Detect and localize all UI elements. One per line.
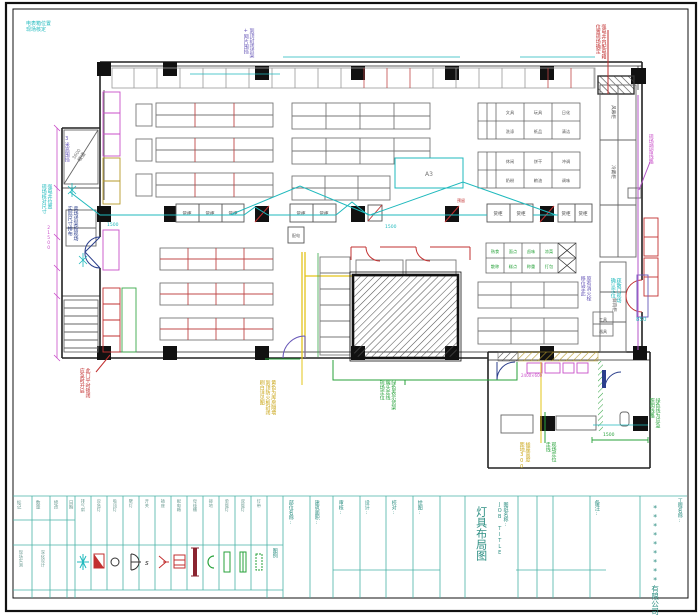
legend-double-lamp-icon	[240, 552, 246, 572]
svg-text:货柜: 货柜	[296, 210, 306, 217]
cyan-wiring	[68, 57, 595, 267]
dim-21500-left: 21500	[46, 226, 51, 251]
note-onsite-position: 现场定位 走线	[544, 442, 556, 462]
legend-label-lamp2: 双管灯	[240, 499, 245, 512]
svg-text:纸品: 纸品	[534, 128, 542, 135]
legend-wall-lamp-icon	[131, 554, 141, 570]
company-name: *********有限公司	[650, 504, 659, 615]
svg-text:日化: 日化	[562, 109, 571, 116]
gondola-shelves-right	[478, 282, 613, 344]
dim-fixtures: 2400×600	[521, 374, 542, 379]
checkout-labels: 货柜货柜 货柜货柜 货柜货柜 货柜货柜 货柜	[182, 210, 588, 217]
svg-text:休闲: 休闲	[506, 158, 514, 165]
note-fence: 3米高围挡	[63, 136, 69, 162]
left-entry-door	[85, 237, 100, 268]
grid-shelf-labels: 文具玩具日化 洗涤纸品清洁 休闲饼干冲调 奶粉粮油调味	[506, 109, 571, 184]
note-yellow-wall: 黄色为库房隔墙 到顶防火板封闭 刷白详见图	[258, 380, 275, 415]
drawing-sheet: A3 文具玩具日化 洗涤纸品清洁 休闲饼干冲调 奶粉粮油调味 熟食面点 卤味凉菜…	[0, 0, 700, 616]
svg-text:玩具: 玩具	[534, 110, 543, 116]
grid-shelf-blocks	[478, 103, 580, 188]
note-meter-box: 电表箱位置 现场核定	[26, 22, 51, 34]
legend-single-lamp-icon	[224, 552, 230, 572]
svg-text:打包: 打包	[545, 263, 554, 269]
revision-note-2: 深化设计	[40, 550, 45, 567]
svg-text:风幕柜: 风幕柜	[610, 105, 617, 119]
legend-busbar-icon	[191, 548, 199, 576]
legend-ground-icon	[208, 556, 214, 568]
legend-socket-icon	[159, 556, 169, 568]
svg-text:饼干: 饼干	[534, 158, 542, 165]
legend-distribution-box-icon	[174, 555, 185, 568]
legend-label-switch: 开关	[144, 499, 149, 507]
column-check: 审核:	[337, 500, 343, 516]
legend-label-lamp1: 单管灯	[224, 499, 229, 512]
note-emergency-door: 此门平时锁闭 应急时开启	[78, 368, 90, 398]
column-design: 设计:	[363, 500, 369, 516]
legend-label-walllamp: 壁灯	[128, 499, 133, 507]
legend-label-ground: 接地	[208, 499, 213, 507]
svg-text:文具: 文具	[506, 109, 515, 116]
job-title-label: 图纸名称: JOB TITLE	[496, 502, 508, 556]
dim-1500-room: 1500	[603, 433, 614, 438]
note-shaft-box: 强电井内配电箱 位置现场确定	[594, 24, 606, 59]
remark-label: 备注:	[593, 500, 599, 517]
floor-plan-svg: A3 文具玩具日化 洗涤纸品清洁 休闲饼干冲调 奶粉粮油调味 熟食面点 卤味凉菜…	[0, 0, 700, 616]
svg-text:卤味: 卤味	[527, 248, 536, 255]
legend-symbols: s	[77, 548, 262, 576]
legend-strip-light-icon	[256, 554, 262, 570]
revision-header-date: 日期	[68, 500, 73, 509]
note-socket-height: 插座高度 距地300	[518, 442, 530, 470]
column-area: 建筑面积:	[313, 500, 319, 526]
svg-text:糕点: 糕点	[509, 263, 517, 270]
dim-850: 850	[636, 317, 647, 323]
svg-text:熟食: 熟食	[491, 248, 500, 255]
structural-columns	[97, 62, 648, 431]
svg-text:货柜: 货柜	[561, 210, 571, 217]
svg-text:称重: 称重	[527, 263, 535, 270]
revision-header-mark: 标记	[16, 500, 21, 509]
promo-area-label: A3	[425, 171, 433, 178]
svg-text:洗涤: 洗涤	[506, 128, 514, 135]
legend-label-socket: 插座	[160, 499, 165, 507]
legend-label-strip: 灯带	[256, 499, 261, 507]
svg-text:货柜: 货柜	[182, 210, 192, 217]
svg-text:调味: 调味	[562, 177, 571, 184]
svg-text:粮油: 粮油	[534, 177, 542, 184]
dim-1500-mid: 1500	[385, 225, 396, 230]
note-shelf-layout: 卖场货架按现场 实际尺寸排布	[66, 206, 78, 241]
gondola-shelves-lower-left	[160, 248, 273, 340]
svg-text:奶粉: 奶粉	[506, 177, 515, 184]
legend-label-emergency: 应急灯	[96, 499, 101, 512]
note-top-shelving: 到顶封闭货架 +网片围挡	[242, 28, 254, 58]
revision-header-change: 修改	[53, 500, 58, 509]
right-wall-cabinets	[644, 218, 658, 296]
legend-label-fan: 排气扇	[80, 499, 85, 512]
legend-label-downlight: 吸顶灯	[112, 499, 117, 512]
legend-fan-icon	[77, 554, 89, 570]
note-hydrant-move: 原有消火栓 移位至此	[579, 276, 591, 301]
svg-text:面点: 面点	[509, 249, 517, 255]
legend-title: 图例	[271, 548, 277, 558]
note-reserved-line: 现场预留线路	[647, 134, 653, 164]
svg-text:冲调: 冲调	[562, 158, 570, 165]
note-green-endcap: 绿色表示货架 端头走线 现场定位	[378, 380, 395, 410]
column-site-name: 部位名称:	[287, 500, 293, 526]
legend-emergency-light-icon	[94, 554, 104, 568]
svg-text:货柜: 货柜	[205, 210, 215, 217]
svg-text:散称: 散称	[491, 263, 499, 270]
legend-label-distbox: 配电箱	[176, 499, 181, 512]
svg-text:清洁: 清洁	[562, 128, 570, 135]
svg-text:货柜: 货柜	[319, 210, 329, 217]
dim-1500-left: 1500	[107, 223, 118, 228]
utility-box-label: 配电	[292, 232, 300, 238]
project-label: 工程名称:	[676, 498, 682, 524]
sheet-frame	[6, 3, 696, 611]
circuit-leaders	[54, 30, 608, 443]
note-power-shaft: 强电井位置 现场核对尺寸	[40, 184, 52, 214]
revision-note-1: 现场实测	[18, 550, 23, 567]
svg-text:货柜: 货柜	[493, 210, 503, 217]
column-proof: 校对:	[390, 500, 396, 516]
note-exit-door: 疏散门现场 确认定位	[609, 278, 621, 303]
note-green-circuit: 绿色线为应急 照明线路	[648, 398, 660, 428]
central-rooms	[302, 247, 470, 361]
gondola-shelves-upper-left	[136, 103, 273, 197]
legend-label-busbar: 母线槽	[192, 499, 197, 512]
svg-text:货柜: 货柜	[578, 210, 588, 217]
svg-text:货柜: 货柜	[516, 210, 526, 217]
bottom-right-room	[497, 352, 648, 443]
svg-text:冷藏柜: 冷藏柜	[610, 165, 617, 179]
note-reserved: 预留	[457, 199, 465, 204]
legend-downlight-icon	[111, 558, 119, 566]
revision-header-qty: 数量	[35, 500, 40, 509]
drawing-title: 灯具布局图	[474, 506, 487, 561]
legend-switch-icon: s	[145, 559, 149, 567]
column-draw: 绘图:	[416, 500, 422, 516]
svg-text:凉菜: 凉菜	[545, 248, 554, 255]
